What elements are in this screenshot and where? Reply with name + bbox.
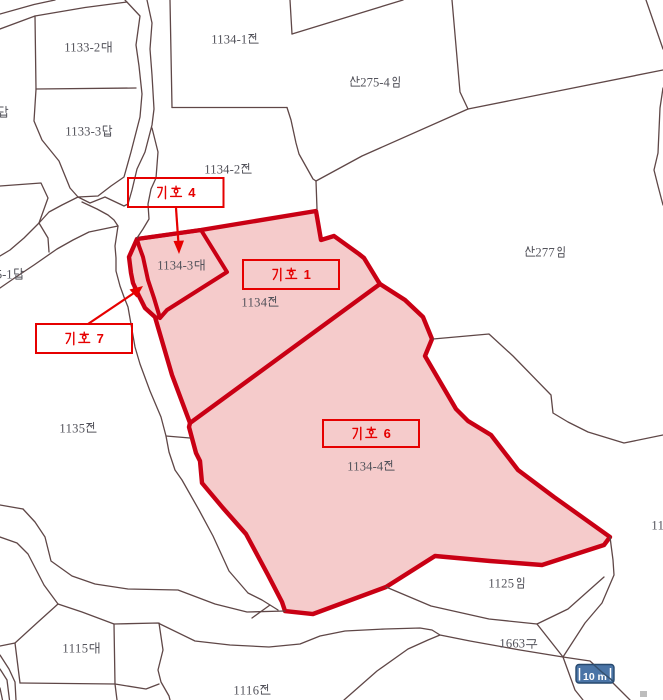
svg-text:1134-3: 1134-3: [157, 258, 193, 272]
svg-text:1663: 1663: [499, 636, 525, 650]
svg-text:4: 4: [188, 185, 196, 200]
svg-text:1125: 1125: [488, 576, 514, 590]
svg-text:275-4: 275-4: [360, 75, 390, 89]
svg-text:1: 1: [304, 267, 311, 282]
svg-text:1134-1: 1134-1: [211, 32, 247, 46]
svg-text:1133-2: 1133-2: [64, 40, 100, 54]
svg-text:7: 7: [97, 331, 104, 346]
svg-text:10: 10: [583, 671, 595, 683]
svg-text:1134-2: 1134-2: [204, 162, 240, 176]
svg-text:1135: 1135: [59, 421, 85, 435]
svg-text:1134: 1134: [241, 295, 267, 309]
svg-text:112: 112: [651, 518, 663, 532]
svg-text:1133-3: 1133-3: [65, 124, 101, 138]
svg-text:6: 6: [384, 426, 391, 441]
svg-text:1115: 1115: [62, 641, 88, 655]
svg-text:5-1: 5-1: [0, 267, 13, 281]
svg-text:277: 277: [535, 245, 554, 259]
svg-text:1116: 1116: [233, 683, 259, 697]
svg-text:1134-4: 1134-4: [347, 459, 384, 473]
